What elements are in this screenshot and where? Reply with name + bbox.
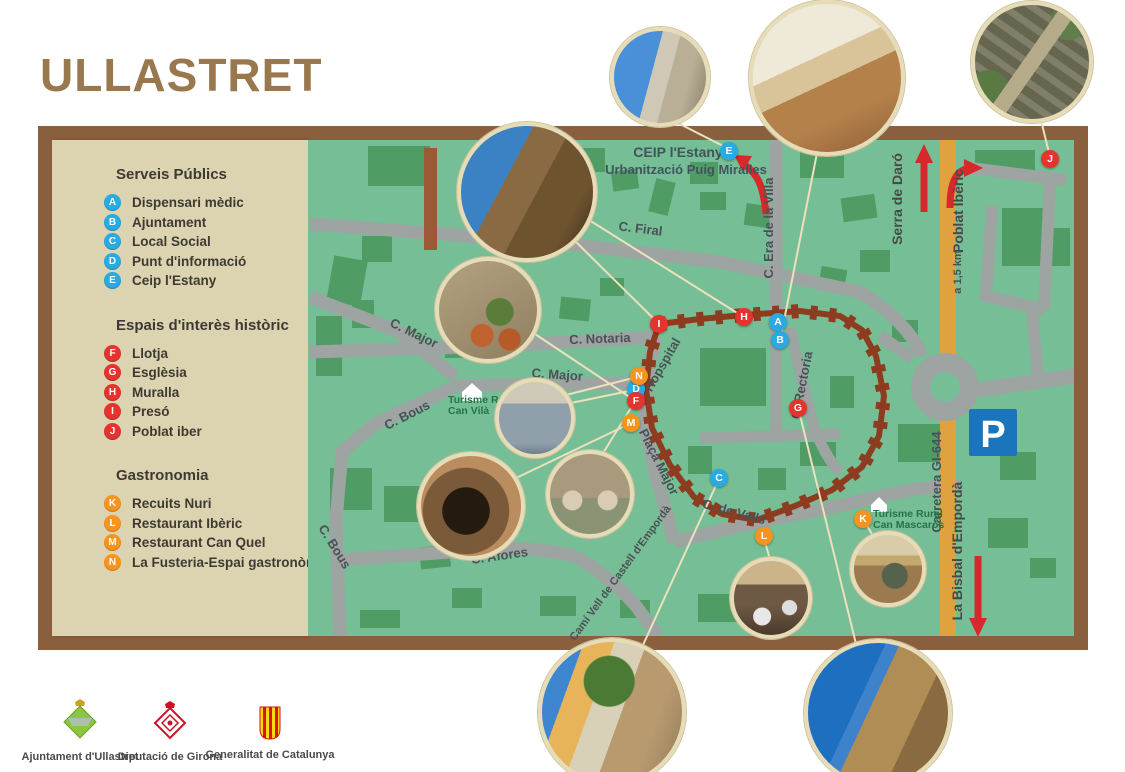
legend-item-H: HMuralla [104,383,308,403]
legend-label: Esglèsia [132,365,187,380]
photo-stone-wall-pots [435,257,541,363]
legend-badge-M: M [104,534,121,551]
map-marker-G: G [789,399,807,417]
legend-badge-H: H [104,384,121,401]
photo-restaurant-interior [730,557,812,639]
legend-label: Presó [132,404,170,419]
photo-restaurant-facade [546,450,634,538]
photo-llotja-arcade [417,452,525,560]
photo-can-mascaros [850,531,926,607]
legend-item-J: JPoblat iber [104,422,308,442]
map-marker-B: B [771,331,789,349]
legend-label: Llotja [132,346,168,361]
photo-muralla-tower [457,122,597,262]
legend-section-title: Espais d'interès històric [116,317,308,334]
photo-courtyard [749,0,905,156]
legend-items-historic: FLlotjaGEsglèsiaHMurallaIPresóJPoblat ib… [104,344,308,442]
legend-items-gastronomia: KRecuits NuriLRestaurant IbèricMRestaura… [104,494,308,572]
legend-section-title: Serveis Públics [116,166,308,183]
legend-badge-B: B [104,214,121,231]
page-title: ULLASTRET [40,48,322,102]
map-marker-E: E [720,142,738,160]
map-marker-I: I [650,315,668,333]
legend-label: Local Social [132,234,211,249]
legend-label: Ceip l'Estany [132,273,216,288]
legend-badge-F: F [104,345,121,362]
poster: ULLASTRET Serveis Públics ADispensari mè… [0,0,1125,772]
legend-item-L: LRestaurant Ibèric [104,514,308,534]
legend-badge-L: L [104,515,121,532]
legend-section-title: Gastronomia [116,467,308,484]
map-marker-K: K [854,510,872,528]
photo-village-square [538,638,686,772]
map-marker-F: F [627,392,645,410]
legend-item-K: KRecuits Nuri [104,494,308,514]
legend-label: Restaurant Can Quel [132,535,266,550]
legend-label: Recuits Nuri [132,496,212,511]
map-marker-L: L [755,527,773,545]
legend-item-C: CLocal Social [104,232,308,252]
legend-item-A: ADispensari mèdic [104,193,308,213]
legend-badge-I: I [104,403,121,420]
legend-badge-A: A [104,194,121,211]
legend-section-historic: Espais d'interès històric FLlotjaGEsglès… [52,291,308,442]
legend-items-serveis: ADispensari mèdicBAjuntamentCLocal Socia… [104,193,308,291]
ajuntament-crest-icon [58,698,102,742]
legend-item-M: MRestaurant Can Quel [104,533,308,553]
legend-item-G: GEsglèsia [104,363,308,383]
photo-info-shop [495,378,575,458]
legend-label: Punt d'informació [132,254,246,269]
legend-badge-D: D [104,253,121,270]
logo-generalitat: Generalitat de Catalunya [180,706,360,761]
map-marker-M: M [622,414,640,432]
legend-item-D: DPunt d'informació [104,252,308,272]
legend-label: La Fusteria-Espai gastronòmic [132,555,329,570]
legend-panel: Serveis Públics ADispensari mèdicBAjunta… [52,140,308,636]
legend-label: Dispensari mèdic [132,195,244,210]
map-marker-J: J [1041,150,1059,168]
legend-item-B: BAjuntament [104,213,308,233]
legend-item-E: ECeip l'Estany [104,271,308,291]
map-marker-H: H [735,308,753,326]
legend-label: Muralla [132,385,179,400]
legend-section-gastronomia: Gastronomia KRecuits NuriLRestaurant Ibè… [52,441,308,572]
legend-badge-J: J [104,423,121,440]
legend-badge-K: K [104,495,121,512]
photo-school [610,27,710,127]
legend-badge-G: G [104,364,121,381]
legend-badge-E: E [104,272,121,289]
legend-badge-C: C [104,233,121,250]
map-marker-N: N [630,367,648,385]
legend-section-serveis: Serveis Públics ADispensari mèdicBAjunta… [52,140,308,291]
map-marker-A: A [769,313,787,331]
generalitat-shield-icon [257,706,283,740]
map-marker-C: C [710,469,728,487]
legend-item-I: IPresó [104,402,308,422]
legend-item-N: NLa Fusteria-Espai gastronòmic [104,553,308,573]
legend-label: Ajuntament [132,215,206,230]
logo-label: Generalitat de Catalunya [180,749,360,761]
legend-item-F: FLlotja [104,344,308,364]
legend-label: Poblat iber [132,424,202,439]
photo-poblat-aerial [971,1,1093,123]
legend-label: Restaurant Ibèric [132,516,242,531]
legend-badge-N: N [104,554,121,571]
photo-church [804,639,952,772]
